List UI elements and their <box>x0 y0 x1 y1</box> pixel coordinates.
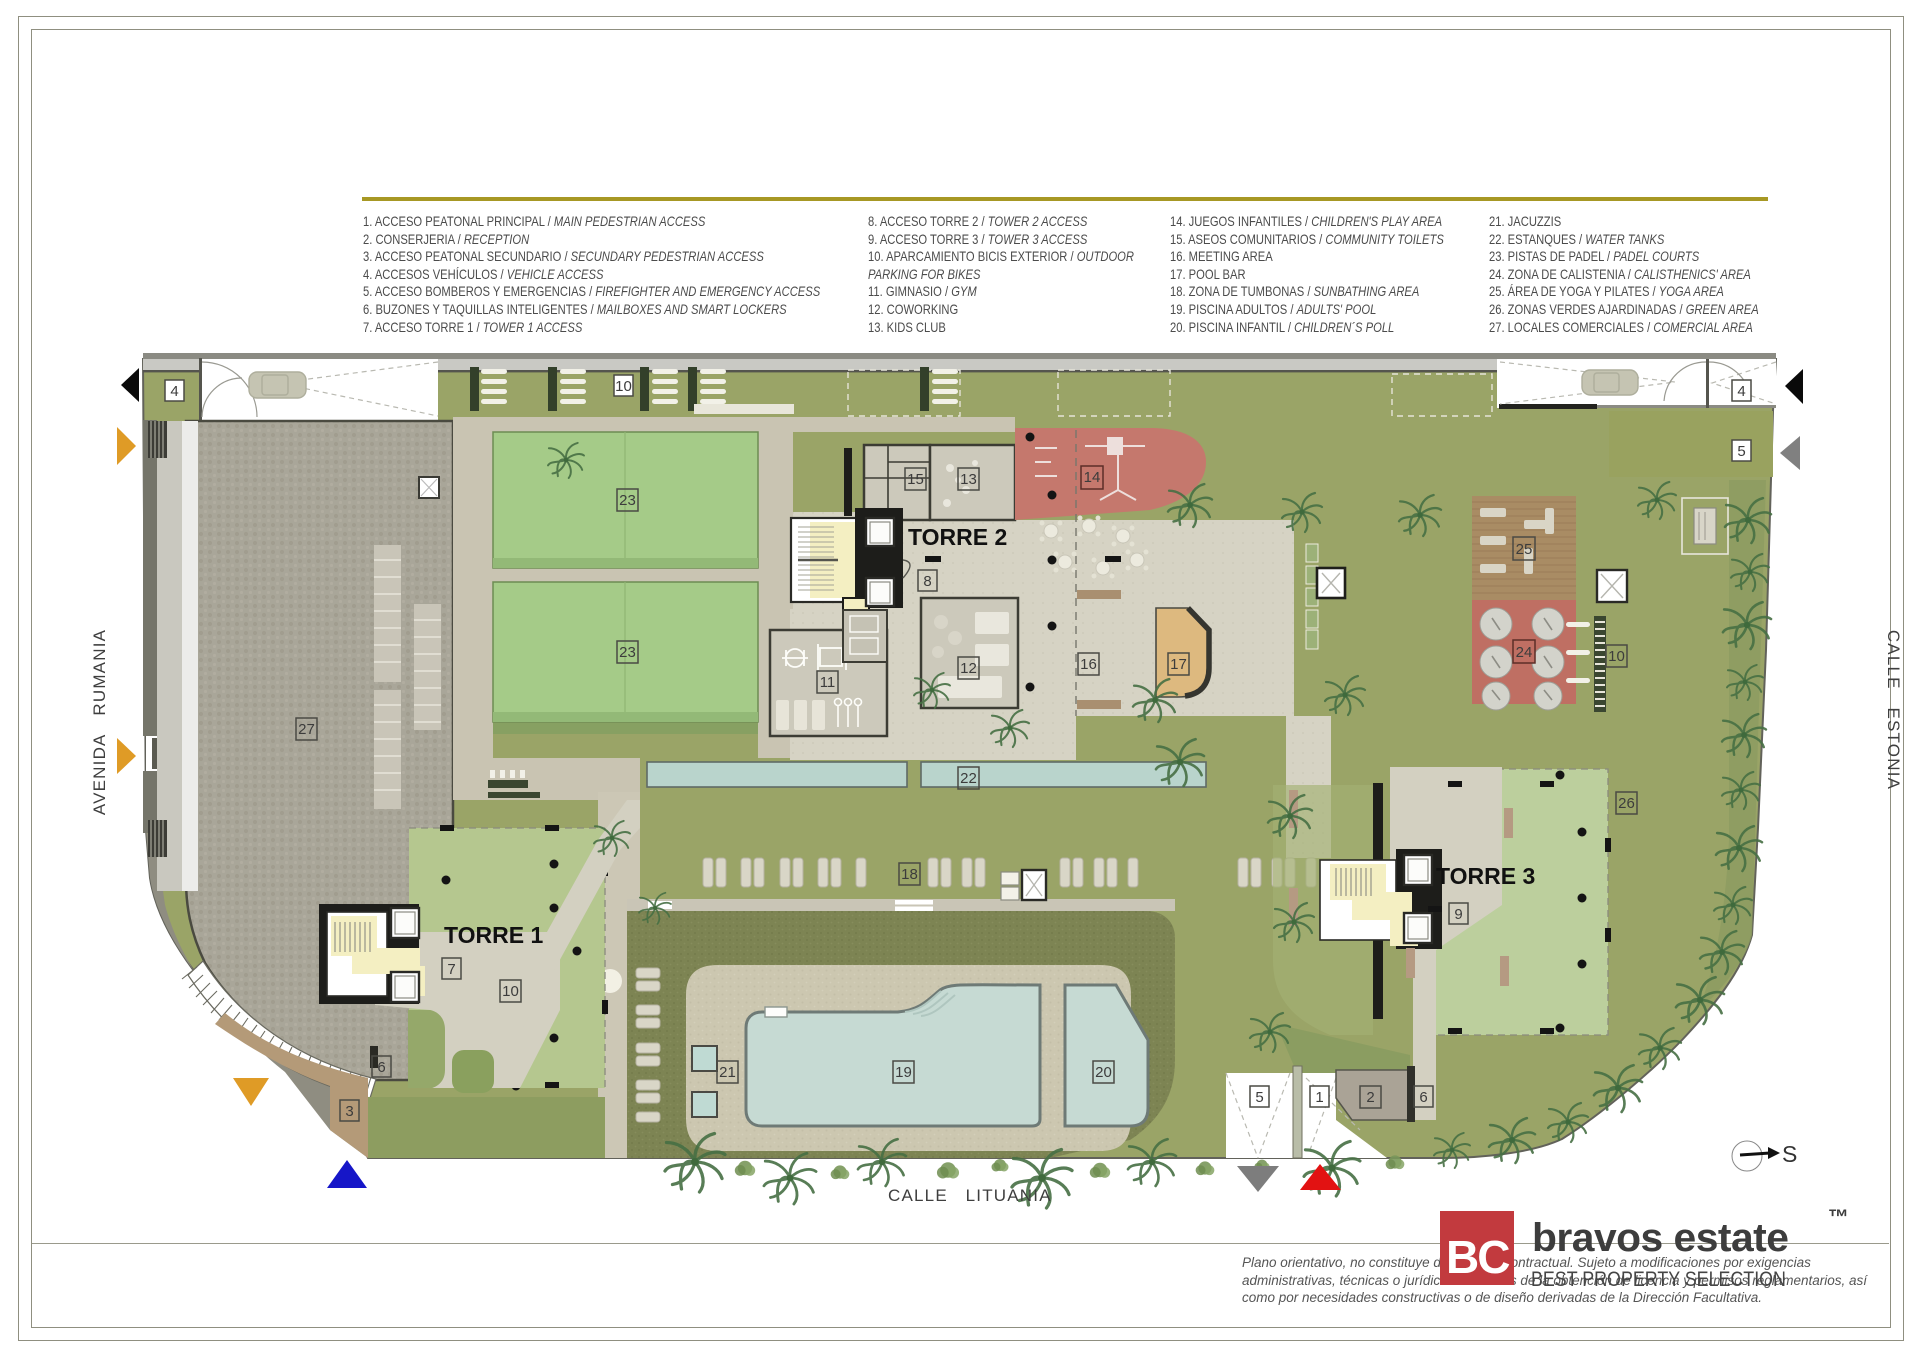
svg-text:7: 7 <box>447 961 455 978</box>
svg-text:12: 12 <box>960 660 977 677</box>
svg-text:S: S <box>1782 1141 1797 1167</box>
svg-text:6: 6 <box>1419 1089 1427 1106</box>
svg-text:5: 5 <box>1737 443 1745 460</box>
svg-text:9: 9 <box>1454 906 1462 923</box>
svg-text:8: 8 <box>923 573 931 590</box>
svg-text:6: 6 <box>377 1059 385 1076</box>
svg-text:18: 18 <box>901 866 918 883</box>
svg-text:15: 15 <box>907 471 924 488</box>
svg-text:4: 4 <box>170 383 178 400</box>
svg-text:19: 19 <box>895 1064 912 1081</box>
svg-text:11: 11 <box>820 674 836 691</box>
svg-text:4: 4 <box>1737 383 1745 400</box>
svg-text:21: 21 <box>719 1064 736 1081</box>
svg-text:10: 10 <box>1608 648 1625 665</box>
svg-text:TORRE 2: TORRE 2 <box>908 524 1007 550</box>
svg-text:24: 24 <box>1516 644 1533 661</box>
svg-text:3: 3 <box>345 1103 353 1120</box>
svg-text:16: 16 <box>1080 656 1097 673</box>
svg-text:5: 5 <box>1255 1089 1263 1106</box>
svg-text:13: 13 <box>960 471 977 488</box>
svg-text:2: 2 <box>1366 1089 1374 1106</box>
svg-text:17: 17 <box>1170 656 1187 673</box>
svg-text:25: 25 <box>1516 541 1533 558</box>
svg-text:27: 27 <box>298 721 315 738</box>
svg-text:10: 10 <box>502 983 519 1000</box>
svg-text:22: 22 <box>960 770 977 787</box>
svg-text:TORRE 1: TORRE 1 <box>444 922 543 948</box>
svg-text:26: 26 <box>1618 795 1635 812</box>
svg-text:23: 23 <box>619 644 636 661</box>
svg-text:TORRE 3: TORRE 3 <box>1436 863 1535 889</box>
svg-text:10: 10 <box>615 378 632 395</box>
svg-text:20: 20 <box>1095 1064 1112 1081</box>
svg-text:1: 1 <box>1315 1089 1323 1106</box>
svg-text:14: 14 <box>1084 469 1101 486</box>
svg-text:23: 23 <box>619 492 636 509</box>
